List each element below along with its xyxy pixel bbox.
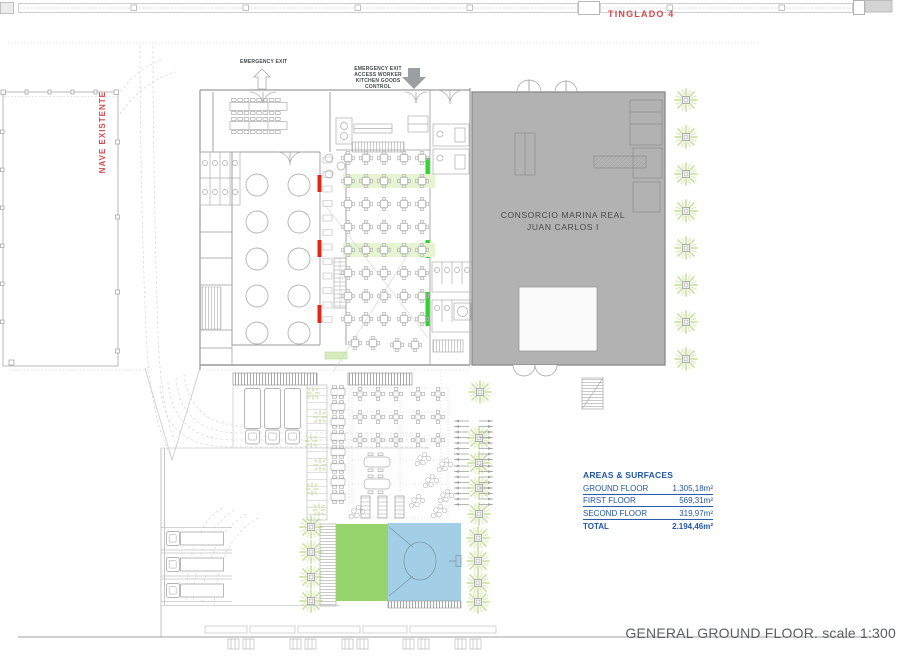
row-label: GROUND FLOOR: [583, 484, 648, 493]
table-row: FIRST FLOOR 569,31m²: [583, 495, 713, 508]
row-value: 569,31m²: [679, 496, 713, 505]
storage-shelving: [201, 287, 221, 329]
terrace-rect-tables: [331, 386, 345, 504]
street-grates: [228, 639, 481, 649]
service-arrow-down-icon: [402, 68, 426, 89]
tinglado-label: TINGLADO 4: [608, 9, 675, 19]
terrace-planters: [361, 496, 404, 518]
service-entrance-line: CONTROL: [352, 84, 404, 90]
stair-to-first-floor: [334, 258, 346, 308]
tinglado-quay-band: [1, 1, 893, 44]
row-value: 1.305,18m²: [673, 484, 713, 493]
row-label: FIRST FLOOR: [583, 496, 636, 505]
consorcio-name-line2: JUAN CARLOS I: [470, 221, 656, 233]
buffet-counter: [323, 157, 332, 323]
round-tables-hall: [246, 174, 310, 344]
deck-strips: [233, 373, 412, 385]
table-row: SECOND FLOOR 319,97m²: [583, 507, 713, 520]
sheet-title: GENERAL GROUND FLOOR. scale 1:300: [560, 625, 896, 641]
steps-strip: [320, 524, 336, 606]
red-exit-markers: [318, 175, 322, 323]
floor-plan-sheet: TINGLADO 4 NAVE EXISTENTE EMERGENCY EXIT…: [0, 0, 900, 657]
basketball-court: [388, 523, 461, 601]
areas-table-title: AREAS & SURFACES: [583, 470, 713, 482]
areas-surfaces-table: AREAS & SURFACES GROUND FLOOR 1.305,18m²…: [583, 470, 713, 532]
toilet-block-left: [200, 152, 240, 205]
row-label: SECOND FLOOR: [583, 509, 647, 518]
consorcio-name-label: CONSORCIO MARINA REAL JUAN CARLOS I: [470, 209, 656, 233]
service-entrance-label: EMERGENCY EXIT ACCESS WORKER KITCHEN GOO…: [352, 66, 404, 90]
sports-area: [320, 523, 461, 608]
row-value: 319,97m²: [679, 509, 713, 518]
restaurant-building: [200, 88, 472, 385]
nave-existente-label: NAVE EXISTENTE: [98, 91, 107, 173]
toilet-block-right: [432, 124, 472, 352]
terrace-parasol-tables: [353, 387, 444, 446]
site-plan-drawing: [0, 0, 900, 657]
total-value: 2.194,46m²: [672, 522, 713, 531]
exit-arrow-up-icon: [254, 69, 270, 89]
table-total-row: TOTAL 2.194,46m²: [583, 520, 713, 533]
terrace: [331, 386, 454, 519]
kitchen-equipment: [325, 116, 428, 178]
terrace-long-tables: [364, 453, 390, 494]
nave-existente-building: [1, 90, 153, 370]
lawn: [336, 524, 388, 601]
court-edge-hatch: [388, 601, 461, 608]
banquet-tables: [230, 99, 287, 134]
exterior-stair: [582, 378, 603, 409]
emergency-exit-label: EMERGENCY EXIT: [240, 59, 286, 65]
pergola-walk: [305, 385, 327, 520]
total-label: TOTAL: [583, 522, 609, 531]
consorcio-building: [441, 80, 665, 522]
consorcio-name-line1: CONSORCIO MARINA REAL: [470, 209, 656, 221]
table-row: GROUND FLOOR 1.305,18m²: [583, 482, 713, 495]
